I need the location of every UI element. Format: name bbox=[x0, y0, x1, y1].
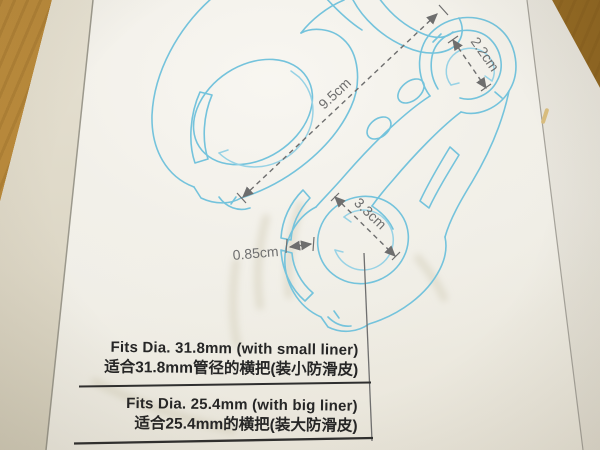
leader-line-table-border bbox=[364, 253, 372, 441]
spec-row: Fits Dia. 25.4mm (with big liner) 适合25.4… bbox=[61, 394, 357, 437]
left-clamp-drawing bbox=[152, 0, 462, 209]
dimension-overall-length: 9.5cm bbox=[237, 5, 448, 203]
spec-row: Fits Dia. 31.8mm (with small liner) 适合31… bbox=[62, 338, 358, 381]
small-ring-diameter-label: 2.2cm bbox=[468, 34, 503, 74]
spec-text-zh: 适合31.8mm管径的横把(装小防滑皮) bbox=[62, 356, 358, 381]
dimension-band-width: 0.85cm bbox=[232, 237, 314, 263]
crease-line bbox=[527, 0, 583, 450]
band-width-label: 0.85cm bbox=[232, 243, 279, 263]
overall-length-label: 9.5cm bbox=[315, 74, 354, 112]
dimension-small-ring: 2.2cm bbox=[448, 34, 503, 91]
spec-table: Fits Dia. 31.8mm (with small liner) 适合31… bbox=[61, 338, 358, 437]
spec-text-zh: 适合25.4mm的横把(装大防滑皮) bbox=[61, 412, 357, 437]
mount-drawing bbox=[281, 17, 516, 331]
spec-table-rule-bottom bbox=[74, 438, 373, 444]
photo-frame: 9.5cm 2.2cm 3.3cm 0.85cm Fits Dia. 31.8 bbox=[0, 0, 600, 450]
